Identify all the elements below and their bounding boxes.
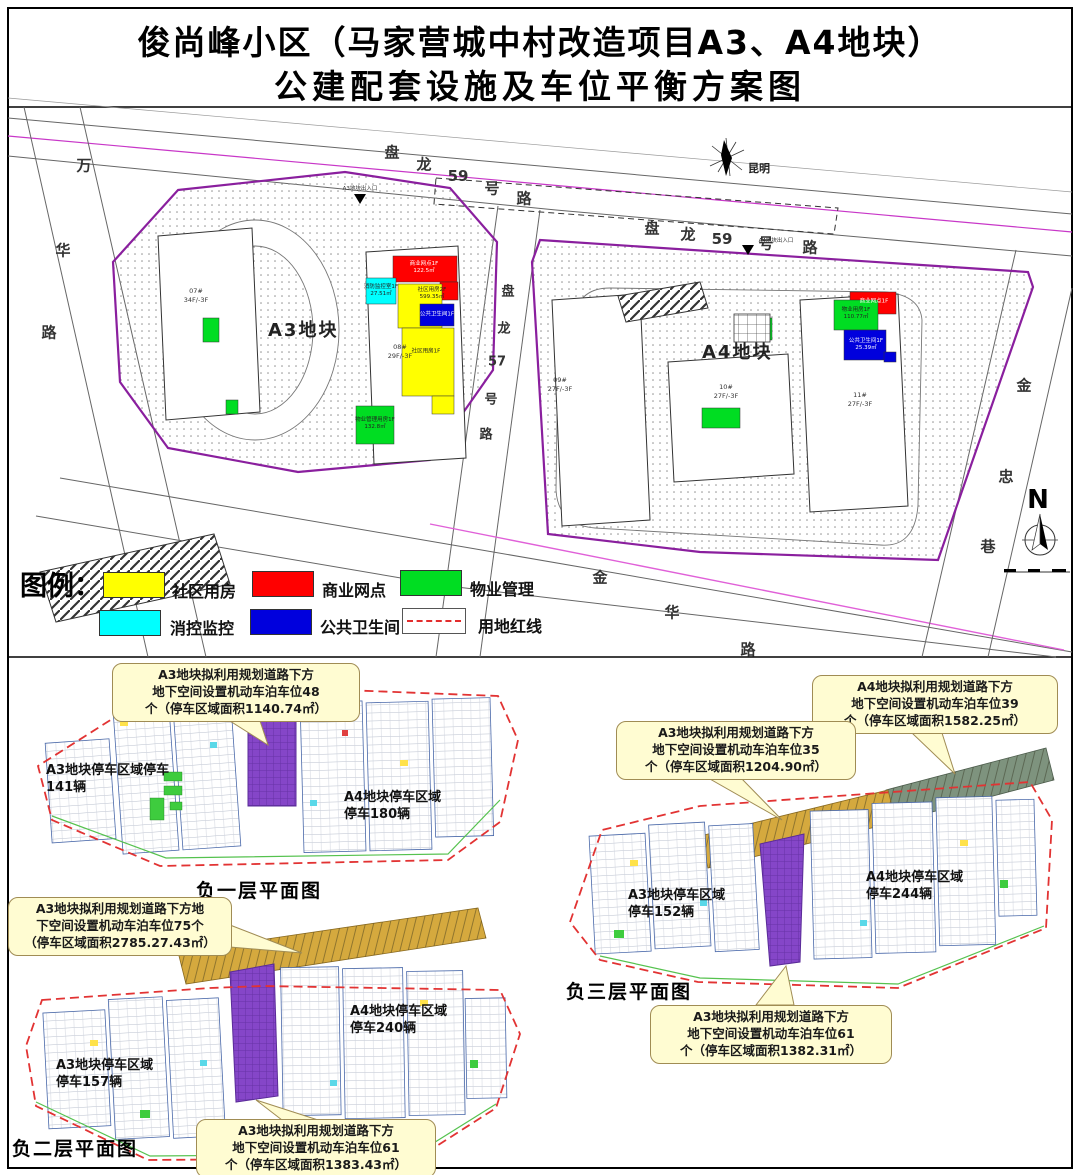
b1-a3-parking-label: A3地块停车区域停车 141辆 xyxy=(46,763,169,797)
building-label-11: 11# 27F/-3F xyxy=(848,391,872,409)
entrance-label-a3: A3地块出入口 xyxy=(343,184,378,192)
road-wanhua-char: 路 xyxy=(41,322,56,343)
legend-swatch-community xyxy=(103,572,165,598)
road-panlong57-char: 57 xyxy=(488,355,506,370)
b1-callout-a3-48: A3地块拟利用规划道路下方 地下空间设置机动车泊车位48 个（停车区域面积114… xyxy=(112,663,360,722)
building-label-07: 07# 34F/-3F xyxy=(184,287,208,305)
legend-label-toilet: 公共卫生间 xyxy=(320,614,400,638)
facility-label-a3-commercial: 商业网点1F 122.5㎡ xyxy=(410,261,439,275)
b3-a3-parking-label: A3地块停车区域 停车152辆 xyxy=(628,888,725,922)
road-panlong59-char: 龙 xyxy=(416,154,431,175)
road-panlong59-char: 盘 xyxy=(384,142,399,163)
plan-b3-linework xyxy=(570,748,1054,988)
north-compass-icon xyxy=(1022,514,1058,555)
road-jinzhong-char: 金 xyxy=(1016,375,1031,396)
legend-label-community: 社区用房 xyxy=(172,578,236,602)
facility-label-a3-community2f: 社区用房2F 599.35㎡ xyxy=(418,287,447,301)
b3-a4-parking-label: A4地块停车区域 停车244辆 xyxy=(866,870,963,904)
b2-a4-parking-label: A4地块停车区域 停车240辆 xyxy=(350,1004,447,1038)
road-jinzhong-char: 忠 xyxy=(998,466,1013,487)
road-wanhua-char: 万 xyxy=(76,155,91,176)
b2-plan-title: 负二层平面图 xyxy=(12,1134,138,1161)
facility-label-a4-toilet: 公共卫生间1F 25.39㎡ xyxy=(849,338,883,352)
legend-label-firecontrol: 消控监控 xyxy=(170,615,234,639)
road-panlong59-char: 盘 xyxy=(644,218,659,239)
scale-bar xyxy=(1004,569,1070,572)
road-panlong59-char: 号 xyxy=(484,178,499,199)
b2-callout-a3-75: A3地块拟利用规划道路下方地 下空间设置机动车泊车位75个 （停车区域面积278… xyxy=(8,897,232,956)
facility-label-a4-property: 物业用房1F 110.77㎡ xyxy=(842,307,871,321)
road-panlong59-char: 59 xyxy=(712,230,733,248)
legend-label-commercial: 商业网点 xyxy=(322,577,386,601)
site-plan-linework xyxy=(8,98,1072,657)
legend-label-redline: 用地红线 xyxy=(478,613,542,637)
facility-label-a3-community1f: 社区用房1F xyxy=(412,349,441,356)
legend-swatch-firecontrol xyxy=(99,610,161,636)
plan-sheet: 俊尚峰小区（马家营城中村改造项目A3、A4地块） 公建配套设施及车位平衡方案图 … xyxy=(0,0,1080,1175)
legend-swatch-redline xyxy=(402,608,466,634)
road-jinzhong-char: 巷 xyxy=(980,536,995,557)
road-panlong59-char: 路 xyxy=(802,237,817,258)
plot-a4-label: A4地块 xyxy=(702,338,772,364)
building-label-08: 08# 29F/-3F xyxy=(388,343,412,361)
road-wanhua-char: 华 xyxy=(55,240,70,261)
road-jinhua-char: 金 xyxy=(592,567,607,588)
building-label-09: 09# 27F/-3F xyxy=(548,376,572,394)
b3-callout-a3-61: A3地块拟利用规划道路下方 地下空间设置机动车泊车位61 个（停车区域面积138… xyxy=(650,1005,892,1064)
entrance-label-a4: A4地块出入口 xyxy=(759,236,794,244)
facility-label-a3-firecontrol: 消防监控室1F 27.51㎡ xyxy=(364,284,398,298)
road-panlong57-char: 号 xyxy=(484,389,497,408)
legend-swatch-commercial xyxy=(252,571,314,597)
road-panlong57-char: 路 xyxy=(479,424,492,443)
sheet-title-line1: 俊尚峰小区（马家营城中村改造项目A3、A4地块） xyxy=(0,16,1080,64)
legend-label-property: 物业管理 xyxy=(470,576,534,600)
b2-callout-a3-61: A3地块拟利用规划道路下方 地下空间设置机动车泊车位61 个（停车区域面积138… xyxy=(196,1119,436,1175)
kunming-star-icon xyxy=(710,138,744,176)
b1-a4-parking-label: A4地块停车区域 停车180辆 xyxy=(344,790,441,824)
road-panlong59-char: 路 xyxy=(516,188,531,209)
facility-label-a3-toilet: 公共卫生间1F xyxy=(420,312,454,319)
road-jinhua-char: 华 xyxy=(664,602,679,623)
facility-label-a4-commercial: 商业网点1F xyxy=(860,299,889,306)
b2-a3-parking-label: A3地块停车区域 停车157辆 xyxy=(56,1058,153,1092)
facility-label-a3-property: 物业管理用房1F 132.8㎡ xyxy=(355,417,395,431)
legend-swatch-property xyxy=(400,570,462,596)
road-panlong59-char: 59 xyxy=(448,167,469,185)
b3-plan-title: 负三层平面图 xyxy=(566,977,692,1004)
plot-a3-label: A3地块 xyxy=(268,316,338,342)
b3-callout-a3-35: A3地块拟利用规划道路下方 地下空间设置机动车泊车位35 个（停车区域面积120… xyxy=(616,721,856,780)
building-label-10: 10# 27F/-3F xyxy=(714,383,738,401)
road-jinhua-char: 路 xyxy=(740,639,755,660)
sheet-title-line2: 公建配套设施及车位平衡方案图 xyxy=(0,60,1080,108)
legend-title: 图例： xyxy=(20,564,101,603)
legend-swatch-toilet xyxy=(250,609,312,635)
north-label: N xyxy=(1027,485,1049,515)
road-panlong57-char: 盘 xyxy=(501,281,514,300)
road-panlong57-char: 龙 xyxy=(497,318,510,337)
road-panlong59-char: 龙 xyxy=(680,224,695,245)
city-label: 昆明 xyxy=(748,160,770,176)
